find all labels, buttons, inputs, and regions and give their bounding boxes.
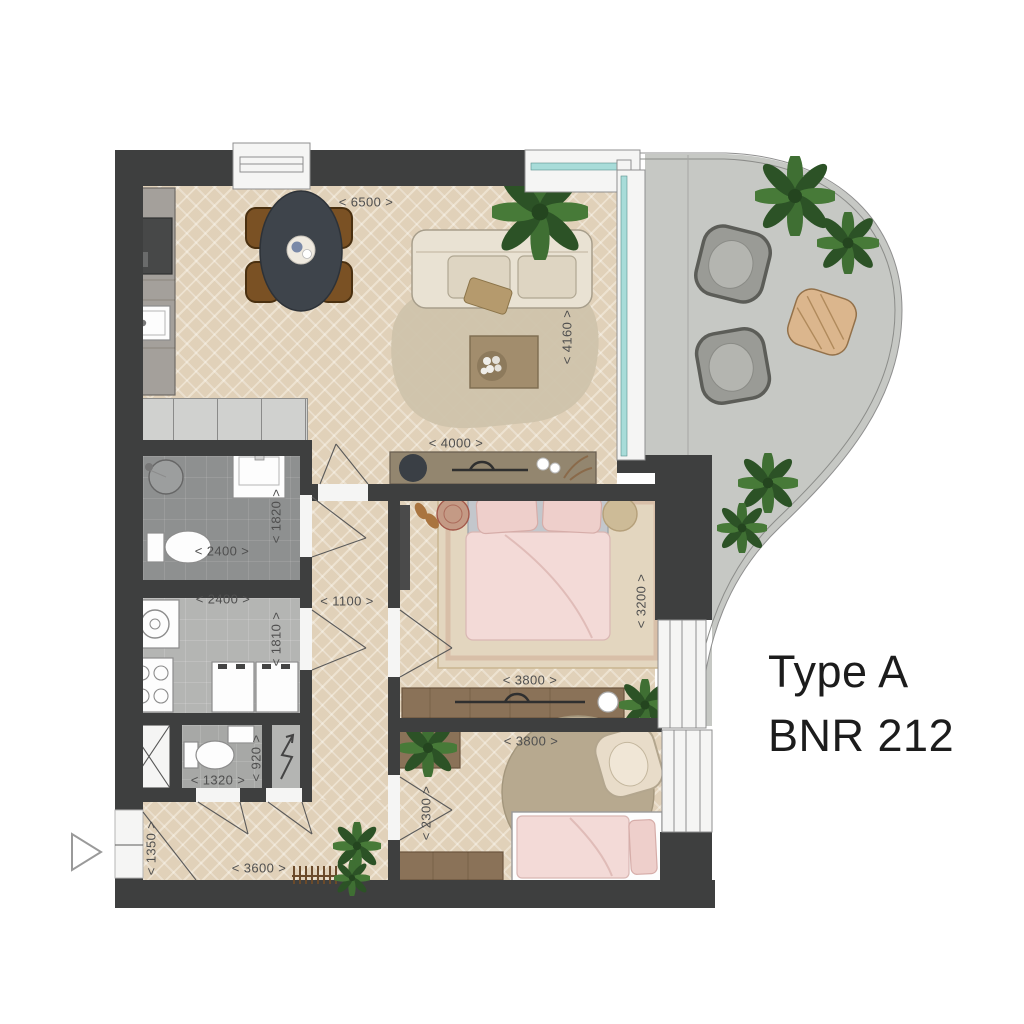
dim-entry-width: < 3600 > [232, 861, 287, 876]
wall-segment [262, 713, 272, 790]
dim-bedroom1-depth: < 3200 > [634, 574, 649, 629]
wall-segment [388, 840, 400, 880]
wall-segment [655, 455, 712, 620]
dim-bedroom1-width: < 3800 > [503, 673, 558, 688]
wc-door [196, 788, 240, 802]
wall-segment [302, 788, 312, 802]
pillow [629, 819, 658, 874]
plan-title: Type A BNR 212 [768, 640, 954, 768]
kitchen-window [233, 143, 310, 189]
wall-segment [388, 484, 400, 608]
bedroom1-window [658, 620, 706, 728]
wall-segment [170, 713, 182, 790]
bedroom2-door [388, 775, 400, 840]
dim-wc-depth: < 920 > [249, 735, 264, 782]
wall-segment [240, 788, 266, 802]
bedroom1-door [388, 608, 400, 677]
bedside-rug-right [603, 497, 637, 531]
bathroom-door [300, 495, 312, 557]
wall-segment [310, 150, 525, 186]
bedroom2-shelf [398, 852, 503, 880]
entrance-marker [72, 834, 101, 870]
coffee-table [470, 336, 538, 388]
wall-segment [115, 150, 233, 186]
dim-utility-depth: < 1810 > [269, 612, 284, 667]
wall-segment [660, 832, 712, 908]
wall-segment [400, 718, 662, 732]
appliance-pair [212, 662, 298, 712]
wall-segment [115, 440, 300, 456]
wall-segment [115, 788, 196, 802]
floor-plan: < 6500 > < 4160 > < 4000 > < 1820 > < 24… [0, 0, 1024, 1024]
wall-segment [115, 880, 715, 908]
double-bed [466, 490, 610, 640]
dim-bedroom2-width: < 3800 > [504, 734, 559, 749]
single-bed [512, 812, 662, 882]
wc-toilet [184, 741, 234, 769]
wall-segment [300, 440, 312, 495]
utility-door [300, 608, 312, 670]
desk-lamp [598, 692, 618, 712]
wall-segment [115, 713, 300, 725]
living-room [391, 159, 598, 428]
dim-sideboard-wall: < 4000 > [429, 436, 484, 451]
sideboard [390, 452, 596, 484]
dim-bathroom-depth: < 1820 > [269, 489, 284, 544]
dim-utility-width: < 2400 > [196, 592, 251, 607]
balcony-plant-4 [715, 501, 770, 556]
plan-number: BNR 212 [768, 704, 954, 768]
hall-plant-2 [332, 858, 372, 898]
tech-closet-door [266, 788, 302, 802]
living-glass-wall [617, 170, 645, 460]
dim-entry-depth: < 1350 > [144, 821, 159, 876]
balcony-plant-2 [814, 209, 882, 277]
wall-segment [300, 670, 312, 790]
dining-area [246, 191, 352, 311]
bedroom1-desk [402, 688, 624, 718]
bedroom2-window [662, 730, 712, 832]
decor-vase [399, 454, 427, 482]
seat-cushion [518, 256, 576, 298]
decor-candle [537, 458, 549, 470]
dim-wc-width: < 1320 > [191, 773, 246, 788]
dim-hall-width: < 1100 > [320, 594, 374, 609]
bedroom-1 [396, 490, 674, 734]
dim-living-width: < 6500 > [339, 195, 394, 210]
wall-segment [300, 557, 312, 608]
dim-bedroom2-depth: < 2300 > [419, 786, 434, 841]
balcony-lounge-chair-2 [693, 326, 772, 407]
wall-segment [368, 484, 655, 501]
dim-bathroom-width: < 2400 > [195, 544, 250, 559]
wall-segment [388, 677, 400, 775]
decor-candle [550, 463, 560, 473]
duvet [517, 816, 629, 878]
plan-type: Type A [768, 640, 954, 704]
bedside-rug-left [437, 498, 469, 530]
dim-living-depth: < 4160 > [560, 310, 575, 365]
duvet [466, 532, 610, 640]
living-hall-door [318, 484, 368, 501]
